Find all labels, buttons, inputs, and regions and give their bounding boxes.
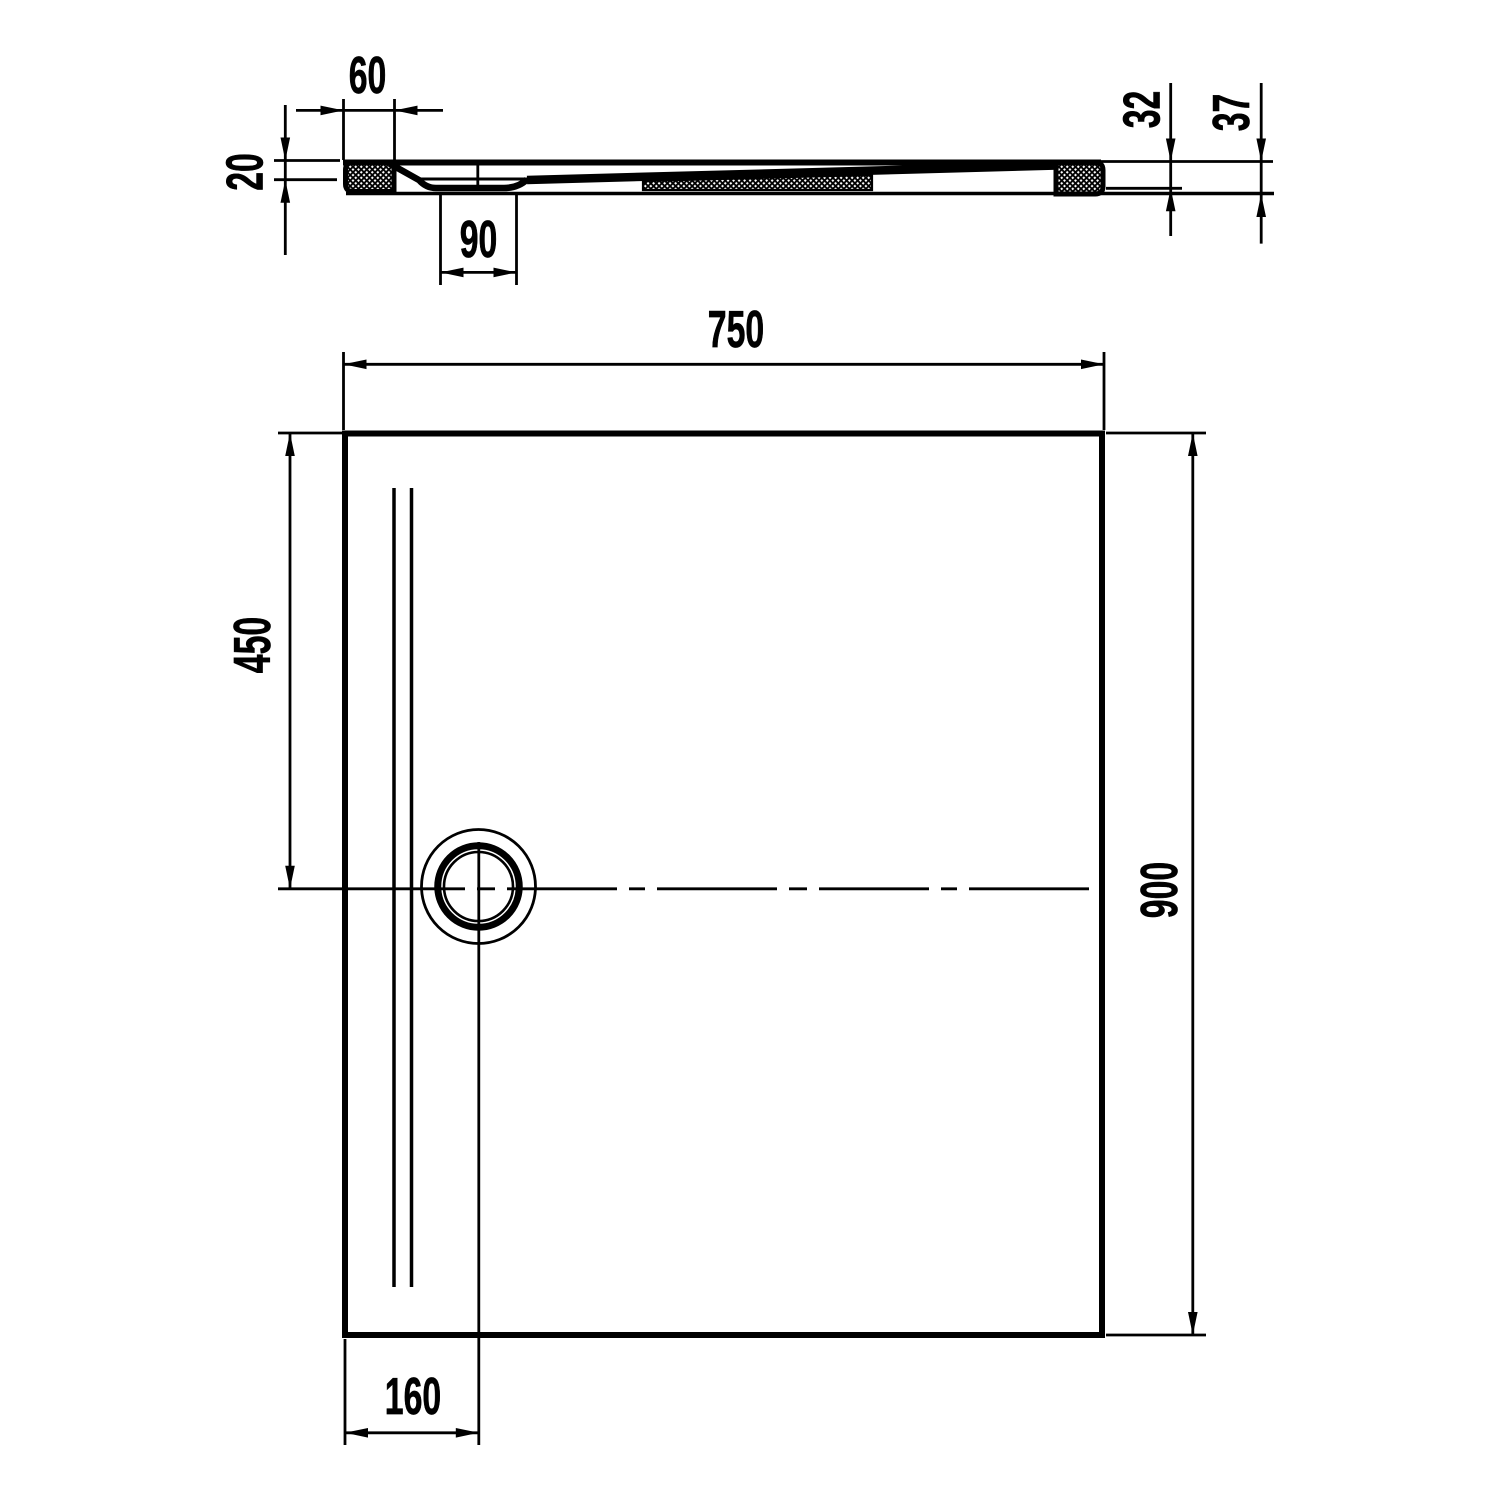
svg-text:20: 20 — [216, 153, 274, 191]
svg-text:450: 450 — [224, 617, 282, 673]
svg-text:750: 750 — [708, 301, 764, 359]
svg-text:60: 60 — [349, 47, 387, 105]
svg-text:900: 900 — [1131, 862, 1189, 918]
svg-text:90: 90 — [460, 211, 498, 269]
svg-text:32: 32 — [1113, 91, 1171, 129]
svg-text:160: 160 — [385, 1368, 441, 1426]
svg-text:37: 37 — [1203, 94, 1261, 132]
